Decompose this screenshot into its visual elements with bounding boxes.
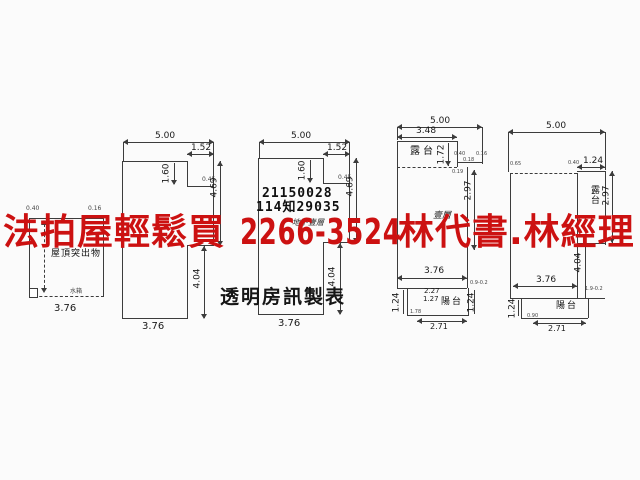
dim-label: 1.60 <box>299 160 308 180</box>
floorplan-sheet: 屋頂突出物 0.40 0.16 水箱 3.76 5.00 1.52 1.60 0… <box>0 0 640 480</box>
witness-line <box>508 132 509 172</box>
dim-label: 4.69 <box>347 176 356 196</box>
dim-label: 2.71 <box>430 323 448 331</box>
watermark-text-left: 法拍屋輕鬆買 <box>3 215 225 251</box>
wall-line <box>407 315 468 316</box>
tiny-dim: 0.40 <box>568 161 579 166</box>
dim-arrowhead <box>462 318 467 324</box>
watermark-phone: 2266-3524 <box>240 215 402 251</box>
dim-arrowhead <box>217 161 223 166</box>
dim-label: 5.00 <box>291 132 311 141</box>
dim-arrowhead <box>307 178 313 183</box>
dim-arrowhead <box>572 283 577 289</box>
dim-arrowhead <box>609 171 615 176</box>
dim-line <box>397 137 457 138</box>
dim-line <box>403 290 404 314</box>
dim-line <box>204 246 205 318</box>
tiny-dim: 0.16 <box>476 152 487 157</box>
tiny-dim: 0.9-0.2 <box>470 281 488 286</box>
dim-arrowhead <box>452 134 457 140</box>
wall-line <box>258 314 324 315</box>
dim-line <box>397 127 482 128</box>
dim-label: 4.04 <box>575 252 584 272</box>
dim-label: 2.97 <box>603 185 612 205</box>
balcony-label: 陽台 <box>556 302 578 311</box>
dim-arrowhead <box>353 158 359 163</box>
tiny-dim: 1.78 <box>410 310 421 315</box>
terrace-label: 露台 <box>589 185 598 211</box>
dim-label: 3.48 <box>416 127 436 136</box>
dim-arrowhead <box>533 320 538 326</box>
dim-label: 1.72 <box>438 144 447 164</box>
wall-line <box>323 158 324 184</box>
wall-line <box>187 161 188 187</box>
dim-label: 1.52 <box>191 144 211 153</box>
dim-label: 1.27 <box>423 296 439 303</box>
dim-label: 1.52 <box>327 144 347 153</box>
dim-label: 2.27 <box>424 288 440 295</box>
dim-label: 1.24 <box>583 157 603 166</box>
dim-label: 5.00 <box>155 132 175 141</box>
dim-label: 4.69 <box>211 177 220 197</box>
dim-label: 1.24 <box>509 298 518 318</box>
wall-line <box>122 161 188 162</box>
publisher-chop: 透明房訊製表 <box>220 288 346 309</box>
dim-label: 3.76 <box>54 304 76 314</box>
tiny-dim: 0.90 <box>527 314 538 319</box>
dim-arrowhead <box>41 288 47 293</box>
wall-line <box>258 158 324 159</box>
dim-arrowhead <box>471 170 477 175</box>
dim-arrowhead <box>171 180 177 185</box>
wall-line <box>397 141 457 142</box>
dim-label: 3.76 <box>278 319 300 329</box>
tiny-dim: 0.65 <box>510 162 521 167</box>
tiny-dim: 1.9-0.2 <box>585 287 603 292</box>
watermark-text-right: 林代書.林經理 <box>398 215 635 251</box>
dim-label: 4.04 <box>194 268 203 288</box>
dim-label: 3.76 <box>536 276 556 285</box>
wall-line <box>521 298 522 318</box>
witness-line <box>259 142 260 158</box>
stamp-serial-1: 21150028 <box>262 187 333 200</box>
dim-label: 3.76 <box>424 267 444 276</box>
wall-line <box>510 298 605 299</box>
wall-line-dashed <box>397 167 457 168</box>
dim-label: 5.00 <box>430 117 450 126</box>
dim-label: 4.04 <box>329 266 338 286</box>
dim-label: 2.97 <box>465 180 474 200</box>
wall-line <box>122 318 188 319</box>
wall-line <box>407 288 408 316</box>
dim-arrowhead <box>397 134 402 140</box>
wall-line-dashed <box>29 296 104 297</box>
dim-label: 1.60 <box>163 163 172 183</box>
dim-label: 1.24 <box>468 292 477 312</box>
dim-line <box>518 300 519 316</box>
witness-line <box>605 132 606 170</box>
wall-line <box>187 245 188 319</box>
dim-line <box>397 278 467 279</box>
witness-line <box>123 142 124 161</box>
dim-line <box>513 286 577 287</box>
dim-label: 2.71 <box>548 325 566 333</box>
dim-arrowhead <box>462 275 467 281</box>
dim-arrowhead <box>397 275 402 281</box>
dim-arrowhead <box>337 310 343 315</box>
terrace-label: 露台 <box>410 147 436 157</box>
tiny-label: 水箱 <box>70 289 82 295</box>
dim-line <box>508 132 605 133</box>
dim-label: 5.00 <box>546 122 566 131</box>
dim-label: 3.76 <box>142 322 164 332</box>
dim-label: 1.24 <box>393 292 402 312</box>
wall-line <box>577 171 605 172</box>
wall-line <box>588 298 589 318</box>
tiny-dim: 0.19 <box>452 170 463 175</box>
dim-arrowhead <box>201 314 207 319</box>
dim-arrowhead <box>581 320 586 326</box>
small-box <box>29 288 38 298</box>
tiny-dim: 0.18 <box>463 158 474 163</box>
balcony-label: 陽台 <box>441 298 463 307</box>
wall-line-dashed <box>510 173 577 174</box>
dim-arrowhead <box>417 318 422 324</box>
dim-arrowhead <box>513 283 518 289</box>
